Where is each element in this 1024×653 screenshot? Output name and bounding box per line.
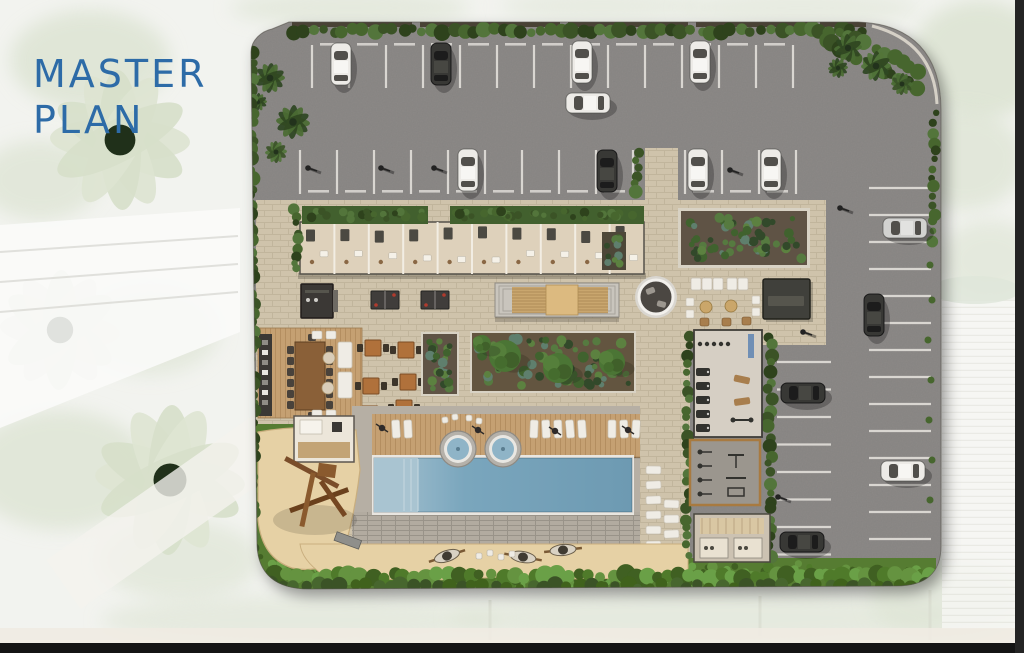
car <box>883 218 934 245</box>
sunken-lounge-steps <box>495 283 619 322</box>
title-line-1: MASTER <box>33 52 208 98</box>
restrooms <box>694 514 770 562</box>
fire-pit <box>635 276 677 318</box>
entry-garden-bed <box>678 208 810 268</box>
garden-bed-west <box>421 332 459 396</box>
ping-pong-table <box>421 291 449 309</box>
pergola <box>763 279 813 322</box>
beach-cabana <box>294 416 354 462</box>
title-line-2: PLAN <box>33 98 208 144</box>
outdoor-gym <box>690 440 760 505</box>
car <box>781 383 832 410</box>
kiosk <box>301 284 338 318</box>
site-plan <box>242 18 945 596</box>
car <box>881 461 932 488</box>
ping-pong-table <box>371 291 399 309</box>
car <box>566 93 617 120</box>
car <box>780 532 831 559</box>
dining-terrace <box>258 328 362 419</box>
central-garden <box>470 331 636 393</box>
page-title: MASTER PLAN <box>33 52 208 143</box>
amenity-building <box>288 203 646 279</box>
